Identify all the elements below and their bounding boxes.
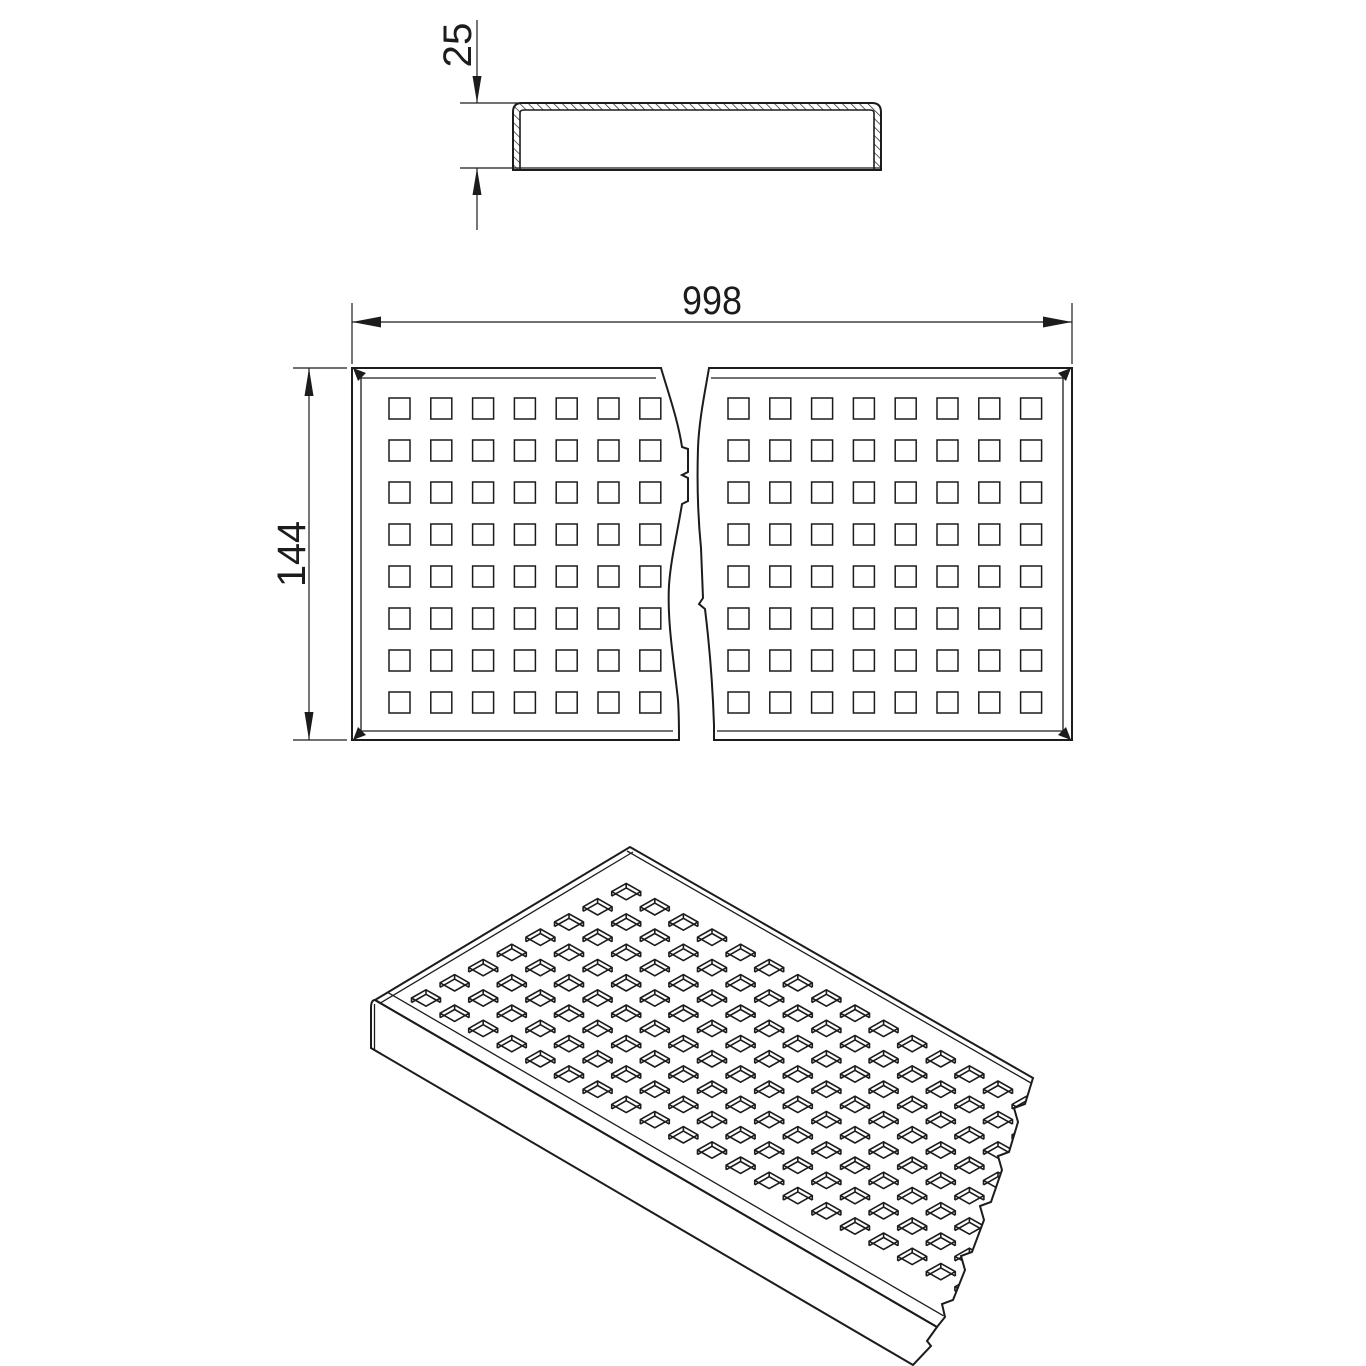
iso-hole [583,1051,612,1067]
iso-hole [783,1066,812,1082]
plan-hole [1021,440,1042,461]
plan-right-panel-border [711,378,1063,731]
plan-hole [473,608,494,629]
plan-hole [728,692,749,713]
plan-hole [640,692,661,713]
iso-hole [612,1066,641,1082]
plan-hole [640,650,661,671]
iso-hole [469,990,498,1006]
plan-hole [728,566,749,587]
iso-hole [1012,1096,1041,1112]
iso-hole [1041,1294,1070,1310]
plan-hole [556,440,577,461]
iso-hole [869,1081,898,1097]
iso-hole [1012,1309,1041,1325]
plan-hole [895,440,916,461]
iso-hole [640,1111,669,1127]
plan-hole [770,566,791,587]
plan-hole [770,608,791,629]
iso-hole [1098,1203,1127,1219]
plan-hole [728,524,749,545]
iso-hole [1041,1172,1070,1188]
section-inner-contour [520,110,874,170]
iso-hole [469,1020,498,1036]
plan-hole [1021,482,1042,503]
plan-hole [473,566,494,587]
iso-hole [1155,1233,1184,1249]
iso-hole [698,1111,727,1127]
iso-hole [555,1005,584,1021]
plan-hole [640,482,661,503]
technical-drawing-page: 25 998 [0,0,1366,1366]
iso-hole [755,1111,784,1127]
side-section-view: 25 [436,20,881,230]
arrowhead-left [352,317,381,328]
plan-hole [812,398,833,419]
plan-hole [812,482,833,503]
iso-hole [783,1096,812,1112]
dimension-label-height: 25 [436,23,480,68]
iso-hole [783,1035,812,1051]
iso-hole [812,1081,841,1097]
plan-hole [937,608,958,629]
iso-hole [812,1172,841,1188]
iso-hole [1212,1203,1241,1219]
iso-hole [726,1035,755,1051]
iso-hole [869,1172,898,1188]
iso-hole [526,959,555,975]
plan-hole [431,608,452,629]
plan-hole [979,566,1000,587]
iso-hole [612,1096,641,1112]
plan-hole [1021,692,1042,713]
iso-hole [841,1127,870,1143]
iso-hole [1041,1111,1070,1127]
iso-hole [726,1157,755,1173]
plan-hole [514,692,535,713]
iso-hole [698,959,727,975]
dimension-998: 998 [352,279,1072,364]
plan-hole [770,440,791,461]
corner-mark-top-right [1058,368,1071,381]
plan-hole [514,608,535,629]
iso-hole [1012,1187,1041,1203]
plan-hole [812,650,833,671]
iso-hole [583,899,612,915]
iso-hole [898,1066,927,1082]
plan-hole [389,482,410,503]
iso-hole [755,959,784,975]
iso-hole [526,929,555,945]
iso-hole [1041,1142,1070,1158]
iso-hole [555,944,584,960]
iso-hole [783,1187,812,1203]
iso-hole [898,1157,927,1173]
plan-hole [598,482,619,503]
corner-mark-bottom-left [353,727,366,740]
iso-hole [898,1187,927,1203]
iso-hole [583,1081,612,1097]
iso-hole [669,975,698,991]
plan-hole [556,566,577,587]
plan-hole [473,398,494,419]
plan-hole [937,440,958,461]
iso-hole [898,1096,927,1112]
iso-hole [898,1127,927,1143]
iso-hole [926,1203,955,1219]
iso-hole [669,1127,698,1143]
iso-hole [1184,1187,1213,1203]
iso-hole [640,899,669,915]
iso-hole [497,944,526,960]
arrowhead-down [305,712,314,740]
arrowhead-up [473,168,482,195]
iso-hole [926,1081,955,1097]
iso-hole [1069,1127,1098,1143]
iso-hole [497,1005,526,1021]
plan-hole [895,398,916,419]
iso-hole [783,975,812,991]
plan-hole [431,650,452,671]
iso-hole [1041,1263,1070,1279]
iso-hole [841,1035,870,1051]
iso-hole [698,1142,727,1158]
iso-hole [698,1051,727,1067]
iso-hole [726,944,755,960]
iso-hole [726,1127,755,1143]
plan-hole [895,524,916,545]
plan-hole [728,650,749,671]
plan-hole [937,482,958,503]
plan-hole [895,650,916,671]
iso-hole [1069,1157,1098,1173]
plan-hole [473,650,494,671]
corner-mark-bottom-right [1058,727,1071,740]
plan-hole [1021,608,1042,629]
plan-holes-right [728,398,1042,713]
iso-hole [755,1051,784,1067]
plan-hole [514,440,535,461]
plan-hole [937,398,958,419]
iso-hole [926,1051,955,1067]
iso-hole [984,1111,1013,1127]
plan-hole [473,524,494,545]
iso-hole [1012,1279,1041,1295]
section-outer-contour [513,103,881,170]
iso-hole [984,1203,1013,1219]
plan-hole [812,440,833,461]
plan-hole [853,566,874,587]
iso-hole [497,975,526,991]
plan-hole [979,692,1000,713]
iso-hole [841,1187,870,1203]
iso-hole [841,1096,870,1112]
iso-hole [555,975,584,991]
iso-hole [812,1051,841,1067]
plan-hole [431,398,452,419]
iso-hole [755,1172,784,1188]
plan-hole [389,608,410,629]
arrowhead-up [305,368,314,396]
iso-hole [1098,1233,1127,1249]
plan-hole [895,482,916,503]
plan-hole [389,524,410,545]
plan-hole [853,524,874,545]
plan-hole [979,524,1000,545]
iso-hole [583,990,612,1006]
iso-hole [1069,1218,1098,1234]
iso-hole [640,929,669,945]
plan-hole [640,608,661,629]
iso-hole [755,1081,784,1097]
iso-hole [984,1233,1013,1249]
iso-hole [726,975,755,991]
iso-hole [841,1218,870,1234]
plan-hole [389,566,410,587]
plan-hole [728,608,749,629]
plan-hole [728,398,749,419]
iso-hole [955,1127,984,1143]
arrowhead-down [473,76,482,103]
iso-top-face-outline [375,847,1033,1327]
plan-hole [979,440,1000,461]
plan-hole [770,398,791,419]
iso-hole [726,1066,755,1082]
plan-hole [979,650,1000,671]
plan-hole [598,524,619,545]
iso-hole [555,1066,584,1082]
iso-holes [412,883,1242,1325]
iso-hole [1041,1203,1070,1219]
plan-hole [979,608,1000,629]
iso-hole [555,914,584,930]
iso-hole [612,914,641,930]
plan-hole [979,398,1000,419]
plan-hole [853,440,874,461]
iso-hole [955,1096,984,1112]
plan-hole [770,482,791,503]
plan-hole [770,524,791,545]
iso-hole [926,1111,955,1127]
plan-holes-left [389,398,661,713]
plan-hole [812,608,833,629]
plan-hole [812,566,833,587]
plan-hole [556,482,577,503]
plan-hole [389,398,410,419]
iso-hole [869,1203,898,1219]
plan-hole [431,566,452,587]
plan-hole [473,482,494,503]
plan-hole [640,524,661,545]
iso-hole [612,1035,641,1051]
isometric-view [371,847,1241,1365]
iso-hole [812,990,841,1006]
plan-view: 998 144 [270,279,1072,740]
iso-hole [955,1157,984,1173]
iso-hole [783,1157,812,1173]
iso-hole [926,1172,955,1188]
iso-hole [583,1020,612,1036]
plan-hole [514,650,535,671]
iso-hole [926,1263,955,1279]
plan-hole [473,440,494,461]
plan-hole [431,440,452,461]
iso-hole [926,1233,955,1249]
iso-hole [669,1096,698,1112]
iso-hole [440,1005,469,1021]
iso-hole [1127,1248,1156,1264]
iso-hole [1127,1218,1156,1234]
iso-hole [926,1142,955,1158]
iso-hole [1069,1248,1098,1264]
drawing-canvas: 25 998 [0,0,1366,1366]
iso-hole [640,990,669,1006]
plan-hole [598,650,619,671]
plan-hole [770,692,791,713]
iso-hole [612,944,641,960]
plan-hole [853,608,874,629]
plan-hole [431,482,452,503]
iso-hole [984,1081,1013,1097]
plan-hole [431,692,452,713]
iso-hole [869,1142,898,1158]
iso-hole [812,1020,841,1036]
iso-hole [898,1035,927,1051]
iso-hole [612,1005,641,1021]
iso-hole [1098,1263,1127,1279]
corner-mark-top-left [353,368,366,381]
plan-hole [937,566,958,587]
plan-hole [514,566,535,587]
plan-hole [389,440,410,461]
iso-hole [669,1005,698,1021]
plan-hole [895,692,916,713]
iso-hole [869,1233,898,1249]
section-hatch-band [513,103,881,170]
plan-right-panel-outline [698,368,1072,740]
iso-hole [640,1020,669,1036]
iso-hole [755,1020,784,1036]
iso-hole [669,1035,698,1051]
plan-hole [853,482,874,503]
plan-hole [640,566,661,587]
iso-hole [1012,1157,1041,1173]
dimension-label-length: 998 [682,279,742,323]
iso-border-back-right [627,851,1031,1083]
iso-hole [612,975,641,991]
plan-hole [598,566,619,587]
iso-hole [669,914,698,930]
iso-hole [526,990,555,1006]
plan-hole [853,398,874,419]
plan-hole [431,524,452,545]
plan-hole [389,650,410,671]
iso-hole [1098,1172,1127,1188]
plan-hole [598,692,619,713]
iso-hole [783,1127,812,1143]
plan-hole [770,650,791,671]
plan-hole [514,398,535,419]
iso-hole [526,1020,555,1036]
plan-hole [812,524,833,545]
iso-hole [497,1035,526,1051]
iso-hole [783,1005,812,1021]
iso-hole [612,883,641,899]
iso-hole [583,929,612,945]
iso-hole [698,990,727,1006]
plan-hole [640,440,661,461]
iso-hole [812,1142,841,1158]
iso-hole [955,1187,984,1203]
iso-hole [640,1081,669,1097]
plan-hole [473,692,494,713]
plan-hole [1021,650,1042,671]
iso-hole [698,1020,727,1036]
iso-hole [1012,1248,1041,1264]
iso-hole [526,1051,555,1067]
plan-hole [389,692,410,713]
iso-hole [440,975,469,991]
plan-hole [556,608,577,629]
iso-hole [1069,1279,1098,1295]
plan-hole [979,482,1000,503]
iso-hole [1155,1203,1184,1219]
iso-hole [412,990,441,1006]
iso-hole [755,1142,784,1158]
iso-hole [955,1066,984,1082]
iso-hole [898,1218,927,1234]
plan-hole [514,524,535,545]
plan-hole [598,398,619,419]
plan-hole [728,482,749,503]
plan-hole [812,692,833,713]
iso-hole [640,959,669,975]
iso-hole [1127,1157,1156,1173]
plan-left-panel-border [361,378,673,731]
iso-hole [841,1005,870,1021]
iso-hole [669,944,698,960]
iso-hole [812,1203,841,1219]
iso-hole [898,1248,927,1264]
plan-left-panel-outline [352,368,688,740]
iso-hole [1184,1218,1213,1234]
iso-hole [869,1111,898,1127]
dimension-144: 144 [270,368,347,740]
iso-hole [869,1051,898,1067]
plan-hole [937,692,958,713]
arrowhead-right [1043,317,1072,328]
iso-hole [555,1035,584,1051]
iso-hole [1155,1172,1184,1188]
plan-hole [556,692,577,713]
plan-hole [1021,524,1042,545]
iso-hole [583,959,612,975]
iso-hole [1098,1142,1127,1158]
plan-hole [556,524,577,545]
plan-hole [1021,566,1042,587]
iso-hole [984,1263,1013,1279]
iso-hole [841,1066,870,1082]
iso-hole [1012,1218,1041,1234]
plan-hole [728,440,749,461]
iso-hole [812,1111,841,1127]
plan-hole [598,608,619,629]
iso-hole [955,1248,984,1264]
iso-hole [469,959,498,975]
plan-hole [937,650,958,671]
plan-hole [853,692,874,713]
plan-hole [1021,398,1042,419]
